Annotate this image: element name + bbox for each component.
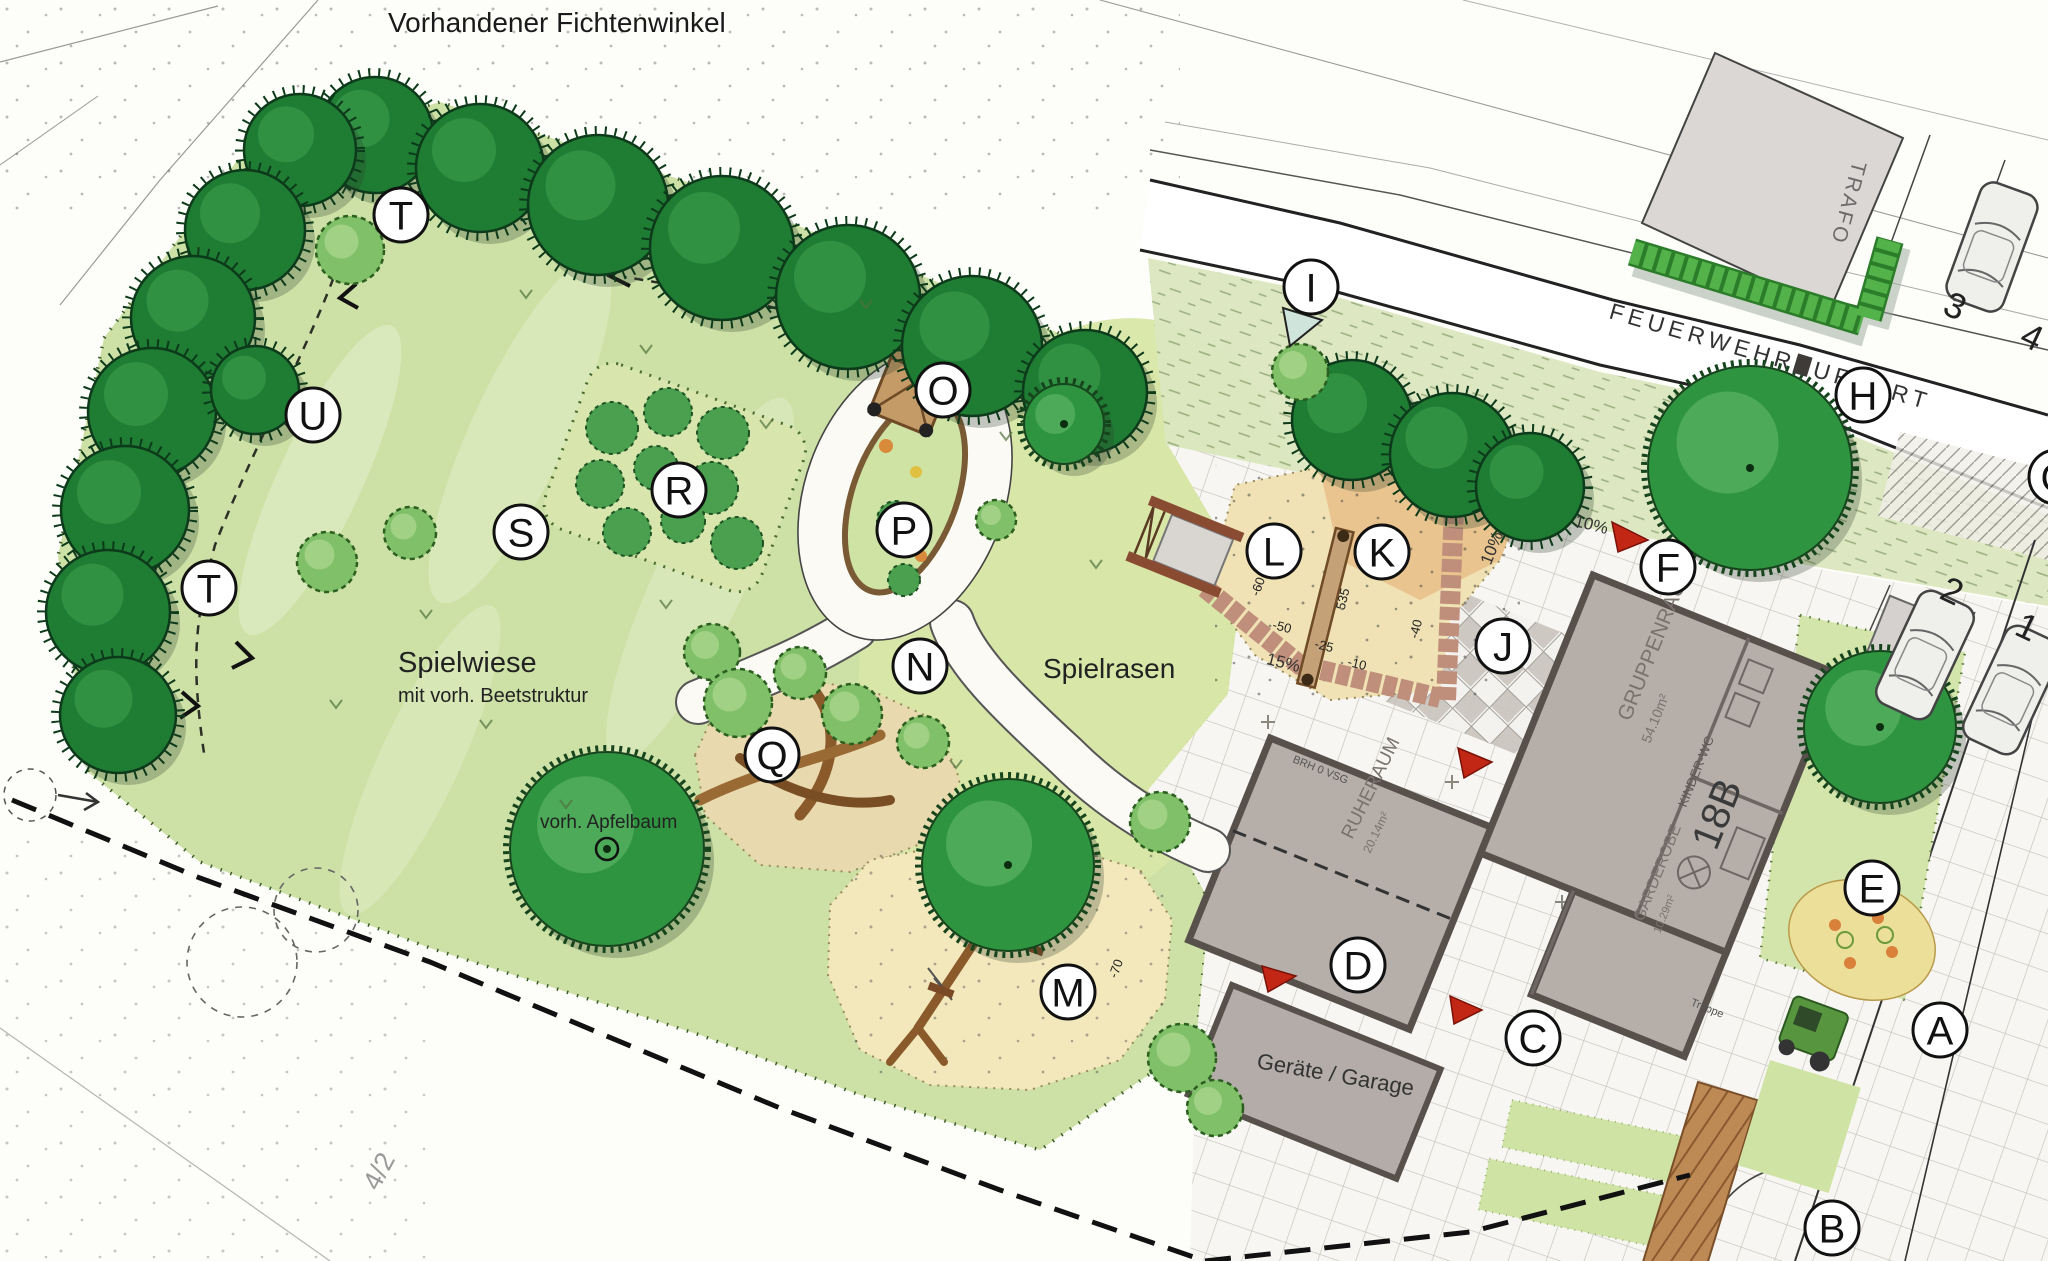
svg-text:K: K (1369, 531, 1396, 575)
svg-text:H: H (1849, 374, 1878, 418)
marker-I: I (1284, 260, 1338, 314)
bush-highlight (713, 678, 747, 712)
spielrasen-label: Spielrasen (1043, 653, 1175, 684)
bed-bush-icon (697, 407, 749, 459)
svg-text:E: E (1859, 867, 1886, 911)
svg-text:L: L (1263, 530, 1285, 574)
island-flower-icon (910, 466, 922, 478)
bush-highlight (691, 631, 719, 659)
spruce-highlight (432, 118, 496, 182)
flower-icon (1829, 919, 1841, 931)
spruce-highlight (200, 183, 260, 243)
svg-text:A: A (1927, 1009, 1954, 1053)
marker-K: K (1355, 525, 1409, 579)
marker-N: N (893, 639, 947, 693)
trunk-dot-icon (1060, 420, 1068, 428)
bush-highlight (1157, 1033, 1191, 1067)
bed-bush-icon (644, 388, 692, 436)
spruce-highlight (62, 564, 124, 626)
spruce-highlight (77, 460, 141, 524)
svg-text:M: M (1051, 971, 1084, 1015)
bush-highlight (325, 225, 359, 259)
marker-T: T (374, 188, 428, 242)
svg-text:T: T (197, 567, 221, 611)
svg-text:U: U (299, 394, 328, 438)
marker-U: U (286, 388, 340, 442)
spruce-highlight (920, 291, 990, 361)
marker-F: F (1641, 540, 1695, 594)
island-bush-icon (888, 564, 920, 596)
page-title: Vorhandener Fichtenwinkel (388, 7, 726, 38)
tree-highlight (946, 801, 1032, 887)
spruce-highlight (668, 192, 740, 264)
bed-bush-icon (586, 402, 638, 454)
bush-highlight (1138, 800, 1168, 830)
bush-highlight (830, 692, 860, 722)
spruce-highlight (222, 356, 266, 400)
marker-E: E (1845, 861, 1899, 915)
marker-Q: Q (745, 728, 799, 782)
svg-text:G: G (2040, 456, 2048, 500)
trunk-dot-icon (1004, 861, 1012, 869)
marker-M: M (1041, 965, 1095, 1019)
svg-text:D: D (1344, 944, 1373, 988)
svg-text:S: S (508, 511, 535, 555)
site-plan: FEUERWEHRZUFAHRT TRAFO (0, 0, 2048, 1261)
flower-icon (1886, 946, 1898, 958)
marker-J: J (1476, 619, 1530, 673)
marker-A: A (1913, 1003, 1967, 1057)
bed-bush-icon (711, 517, 763, 569)
svg-text:I: I (1305, 266, 1316, 310)
svg-text:P: P (891, 509, 918, 553)
svg-text:O: O (927, 369, 958, 413)
trunk-dot-icon (603, 845, 611, 853)
marker-S: S (494, 505, 548, 559)
marker-B: B (1805, 1201, 1859, 1255)
trunk-dot-icon (1746, 464, 1754, 472)
bush-highlight (904, 723, 930, 749)
marker-T: T (182, 561, 236, 615)
spruce-highlight (1490, 445, 1544, 499)
spruce-highlight (1406, 407, 1468, 469)
marker-R: R (652, 463, 706, 517)
bush-highlight (391, 514, 417, 540)
bush-highlight (305, 540, 335, 570)
marker-P: P (877, 503, 931, 557)
svg-text:T: T (389, 194, 413, 238)
marker-H: H (1836, 368, 1890, 422)
svg-text:N: N (906, 645, 935, 689)
spruce-highlight (75, 670, 133, 728)
spruce-highlight (147, 270, 209, 332)
spruce-highlight (546, 150, 616, 220)
bed-bush-icon (576, 460, 624, 508)
trunk-dot-icon (1876, 723, 1884, 731)
tree-highlight (1677, 392, 1779, 494)
spielwiese-sub-label: mit vorh. Beetstruktur (398, 685, 588, 707)
svg-text:B: B (1819, 1207, 1846, 1251)
spruce-highlight (258, 106, 314, 162)
flower-icon (1844, 957, 1856, 969)
svg-text:Q: Q (756, 734, 787, 778)
bush-highlight (1279, 351, 1307, 379)
marker-D: D (1331, 938, 1385, 992)
spielwiese-label: Spielwiese (398, 647, 537, 679)
spruce-highlight (104, 362, 168, 426)
svg-text:R: R (665, 469, 694, 513)
site-plan-page: FEUERWEHRZUFAHRT TRAFO (0, 0, 2048, 1261)
tree-highlight (1035, 394, 1075, 434)
island-flower-icon (879, 439, 893, 453)
bush-highlight (1194, 1087, 1222, 1115)
marker-L: L (1247, 524, 1301, 578)
marker-C: C (1506, 1011, 1560, 1065)
marker-O: O (916, 363, 970, 417)
spruce-highlight (794, 241, 866, 313)
svg-text:C: C (1519, 1017, 1548, 1061)
bush-highlight (781, 654, 807, 680)
bed-bush-icon (603, 508, 651, 556)
svg-text:F: F (1656, 546, 1680, 590)
bush-highlight (981, 505, 1001, 525)
svg-text:J: J (1493, 625, 1513, 669)
apfelbaum-label: vorh. Apfelbaum (540, 812, 677, 833)
